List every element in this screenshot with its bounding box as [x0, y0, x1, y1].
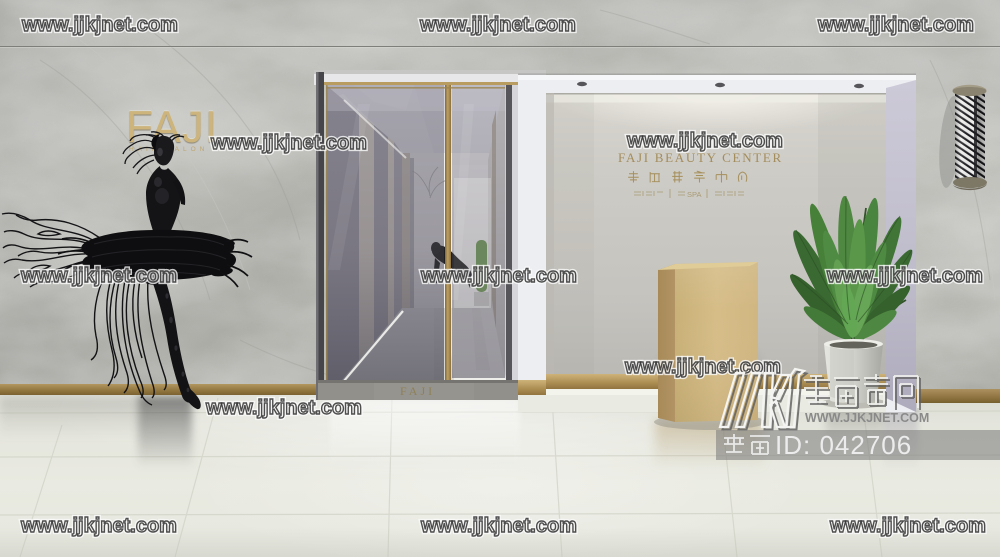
- svg-text:FAJI: FAJI: [400, 384, 435, 398]
- svg-text:ID: 042706: ID: 042706: [775, 430, 912, 460]
- svg-text:WWW.JJKJNET.COM: WWW.JJKJNET.COM: [805, 411, 929, 425]
- svg-text:SPA: SPA: [687, 190, 701, 199]
